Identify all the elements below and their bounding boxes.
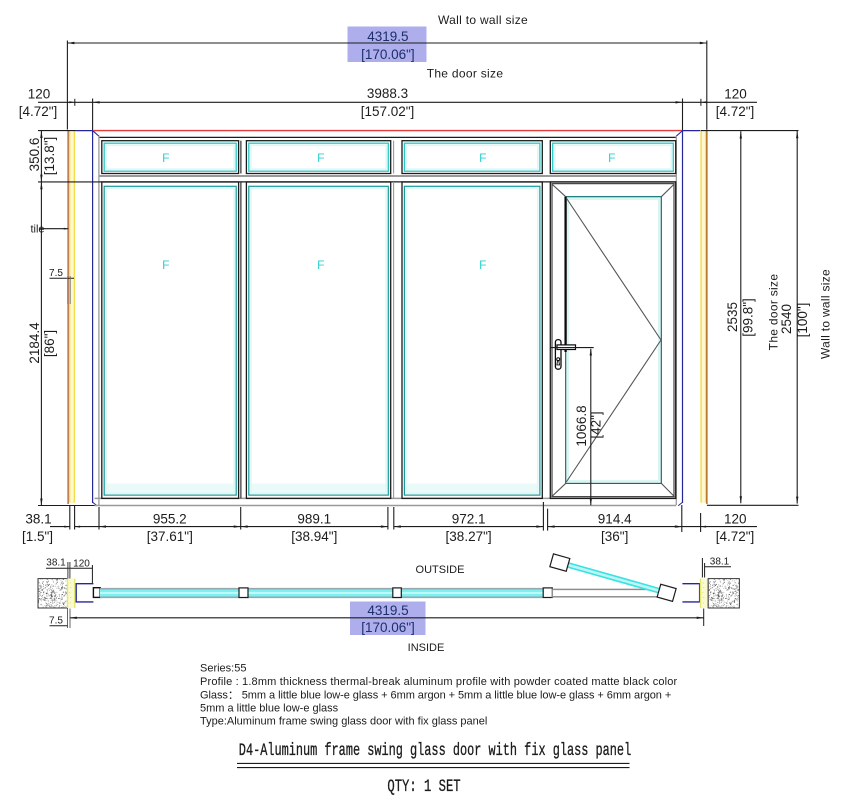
- svg-text:Wall to wall size: Wall to wall size: [438, 13, 528, 27]
- svg-text:120: 120: [28, 87, 51, 102]
- svg-text:[42"]: [42"]: [589, 411, 604, 438]
- svg-text:F: F: [162, 151, 170, 165]
- svg-text:[170.06"]: [170.06"]: [361, 47, 415, 62]
- svg-text:[4.72"]: [4.72"]: [716, 529, 755, 544]
- svg-text:F: F: [479, 258, 487, 272]
- svg-text:D4-Aluminum frame swing glass: D4-Aluminum frame swing glass door with …: [239, 740, 631, 761]
- svg-text:120: 120: [724, 512, 747, 527]
- svg-text:5mm a little blue low-e glass: 5mm a little blue low-e glass: [200, 703, 339, 715]
- svg-text:[157.02"]: [157.02"]: [361, 104, 415, 119]
- svg-text:38.1: 38.1: [710, 557, 730, 568]
- svg-text:QTY: 1 SET: QTY: 1 SET: [387, 776, 460, 797]
- svg-text:4319.5: 4319.5: [367, 29, 408, 44]
- svg-text:INSIDE: INSIDE: [408, 642, 445, 654]
- svg-text:955.2: 955.2: [153, 512, 187, 527]
- svg-text:F: F: [162, 258, 170, 272]
- svg-text:[99.8"]: [99.8"]: [741, 298, 756, 337]
- svg-text:Wall to wall size: Wall to wall size: [819, 269, 833, 359]
- svg-text:3988.3: 3988.3: [367, 86, 408, 101]
- svg-text:[13.8"]: [13.8"]: [42, 137, 57, 176]
- svg-text:Glass： 5mm a little blue low-: Glass： 5mm a little blue low-e glass + 6…: [200, 690, 671, 702]
- svg-text:120: 120: [724, 87, 747, 102]
- svg-text:4319.5: 4319.5: [367, 603, 408, 618]
- svg-text:[4.72"]: [4.72"]: [19, 104, 58, 119]
- svg-text:989.1: 989.1: [297, 512, 331, 527]
- svg-text:38.1: 38.1: [25, 512, 51, 527]
- svg-text:914.4: 914.4: [598, 512, 632, 527]
- svg-text:2535: 2535: [725, 302, 740, 332]
- svg-text:7.5: 7.5: [49, 616, 63, 627]
- svg-text:38.1: 38.1: [46, 558, 66, 569]
- svg-text:Type:Aluminum frame swing glas: Type:Aluminum frame swing glass door wit…: [200, 716, 487, 728]
- svg-text:F: F: [317, 258, 325, 272]
- svg-text:2184.4: 2184.4: [27, 322, 42, 364]
- svg-text:The door size: The door size: [427, 67, 504, 81]
- svg-text:F: F: [317, 151, 325, 165]
- svg-text:[38.94"]: [38.94"]: [291, 529, 337, 544]
- svg-text:[1.5"]: [1.5"]: [22, 529, 53, 544]
- svg-text:F: F: [608, 151, 616, 165]
- svg-text:OUTSIDE: OUTSIDE: [416, 564, 465, 576]
- svg-text:[36"]: [36"]: [601, 529, 628, 544]
- svg-text:[86"]: [86"]: [42, 330, 57, 357]
- svg-text:[100"]: [100"]: [795, 303, 810, 338]
- svg-text:tile: tile: [30, 224, 44, 236]
- svg-text:F: F: [479, 151, 487, 165]
- svg-text:350.6: 350.6: [27, 138, 42, 172]
- svg-text:[37.61"]: [37.61"]: [147, 529, 193, 544]
- svg-text:[4.72"]: [4.72"]: [716, 104, 755, 119]
- svg-text:[38.27"]: [38.27"]: [446, 529, 492, 544]
- svg-text:1066.8: 1066.8: [574, 405, 589, 446]
- svg-text:[170.06"]: [170.06"]: [361, 620, 415, 635]
- svg-text:2540: 2540: [779, 304, 794, 334]
- svg-text:Series:55: Series:55: [200, 663, 246, 675]
- svg-text:972.1: 972.1: [452, 512, 486, 527]
- svg-text:Profile : 1.8mm thickness ther: Profile : 1.8mm thickness thermal-break …: [200, 676, 678, 688]
- svg-text:7.5: 7.5: [49, 268, 63, 279]
